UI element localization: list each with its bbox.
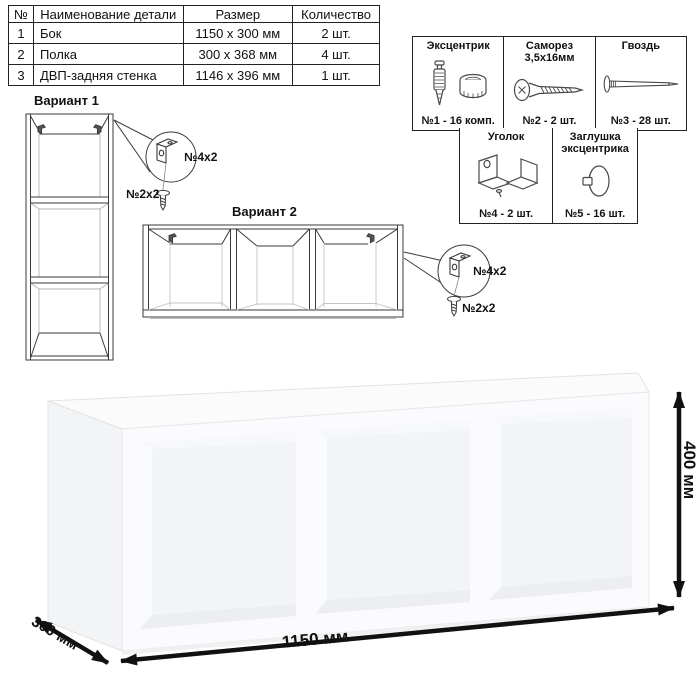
hardware-panel-bottom-row: Уголок №4 - 2 шт. Заглушка эксцентрика №… [459,128,638,224]
variant1-label: Вариант 1 [34,93,99,108]
hardware-item-cam-cover: Заглушка эксцентрика №5 - 16 шт. [552,128,637,223]
hardware-item-title: Эксцентрик [427,40,490,52]
table-row: 3 ДВП-задняя стенка 1146 х 396 мм 1 шт. [9,65,380,86]
assembled-shelf-3d [48,373,649,655]
screw-icon [509,65,589,115]
variant1-screw-qty-label: №2х2 [126,187,159,201]
row-name: ДВП-задняя стенка [33,65,183,86]
corner-bracket-icon [467,143,545,208]
row-num: 2 [9,44,34,65]
col-header-name: Наименование детали [33,6,183,23]
parts-table-header-row: № Наименование детали Размер Количество [9,6,380,23]
row-num: 1 [9,23,34,44]
hardware-item-screw: Саморез 3,5х16мм №2 - 2 шт. [503,37,594,130]
col-header-num: № [9,6,34,23]
width-dimension-arrow [121,608,674,661]
table-row: 2 Полка 300 х 368 мм 4 шт. [9,44,380,65]
height-dimension-label: 400 мм [679,441,699,499]
row-size: 1146 х 396 мм [183,65,293,86]
row-size: 1150 х 300 мм [183,23,293,44]
hardware-item-title: Гвоздь [622,40,660,52]
hardware-item-title: Саморез 3,5х16мм [506,40,592,65]
hardware-item-bracket: Уголок №4 - 2 шт. [460,128,552,223]
variant1-bracket-qty-label: №4х2 [184,150,217,164]
depth-dimension-label: 300 мм [28,613,81,654]
variant1-drawing [26,114,113,360]
hardware-item-title: Заглушка эксцентрика [555,131,635,156]
hardware-item-caption: №4 - 2 шт. [479,208,533,220]
table-row: 1 Бок 1150 х 300 мм 2 шт. [9,23,380,44]
variant2-drawing [143,225,403,319]
hardware-item-title: Уголок [488,131,524,143]
row-name: Полка [33,44,183,65]
hardware-item-caption: №1 - 16 комп. [422,115,495,127]
hardware-item-caption: №5 - 16 шт. [565,208,625,220]
row-qty: 2 шт. [293,23,380,44]
col-header-qty: Количество [293,6,380,23]
nail-icon [599,52,683,115]
variant2-label: Вариант 2 [232,204,297,219]
hardware-item-cam-lock: Эксцентрик №1 - 16 комп. [413,37,503,130]
cam-cover-icon [568,156,622,208]
hardware-item-caption: №3 - 28 шт. [611,115,671,127]
width-dimension-label: 1150 мм [281,627,349,653]
row-name: Бок [33,23,183,44]
col-header-size: Размер [183,6,293,23]
row-size: 300 х 368 мм [183,44,293,65]
hardware-item-nail: Гвоздь №3 - 28 шт. [595,37,686,130]
parts-table: № Наименование детали Размер Количество … [8,5,380,86]
row-qty: 1 шт. [293,65,380,86]
cam-lock-and-dowel-icon [421,52,495,115]
row-num: 3 [9,65,34,86]
hardware-item-caption: №2 - 2 шт. [523,115,577,127]
row-qty: 4 шт. [293,44,380,65]
hardware-panel-top-row: Эксцентрик №1 - 16 комп. Саморез 3,5х16м… [412,36,687,131]
variant2-screw-qty-label: №2х2 [462,301,495,315]
dimension-arrows [36,392,679,663]
variant2-bracket-qty-label: №4х2 [473,264,506,278]
